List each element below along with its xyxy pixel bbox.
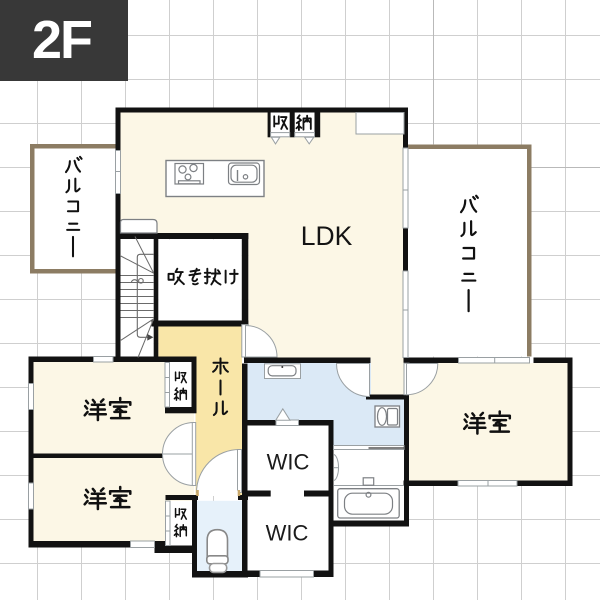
svg-text:LDK: LDK (301, 221, 353, 251)
svg-text:WIC: WIC (267, 450, 310, 475)
svg-text:WIC: WIC (266, 521, 309, 546)
svg-text:2F: 2F (32, 10, 92, 70)
